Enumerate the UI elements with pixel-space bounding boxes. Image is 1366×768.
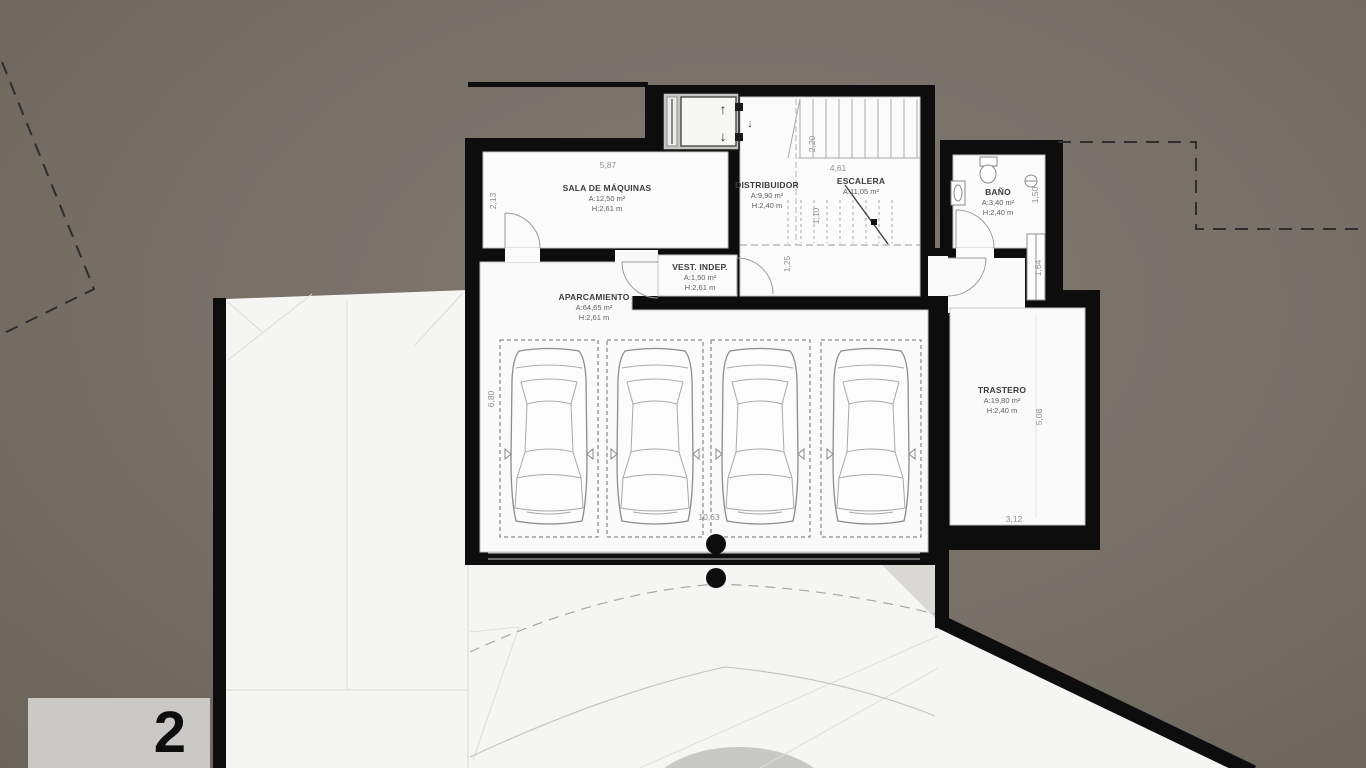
dim-trastero-width: 3,12 (1006, 514, 1023, 524)
vestibule-floor (658, 255, 737, 296)
corridor-floor (948, 258, 1025, 313)
elevator-up-arrow-icon: ↑ (720, 102, 727, 116)
column-dot (706, 568, 726, 588)
elevator-down-arrow-icon: ↓ (720, 129, 727, 143)
dim-distributor-clear: 1,25 (782, 256, 792, 273)
dim-garage-depth: 6,80 (486, 391, 496, 408)
upper-floor-edge-line (468, 82, 648, 87)
dim-bath-width: 1,50 (1030, 187, 1040, 204)
dim-sala-width: 5,87 (600, 160, 617, 170)
vestibule-door-zone (615, 250, 658, 296)
column-dot (706, 534, 726, 554)
stair-hall-floor (740, 97, 920, 296)
floor-plan-sheet: SALA DE MÁQUINAS A:12,50 m² H:2,61 m DIS… (0, 0, 1366, 768)
sheet-number-badge: 2 (28, 698, 210, 768)
dim-trastero-depth: 5,08 (1034, 409, 1044, 426)
car-icon (505, 349, 593, 525)
car-icon (716, 349, 804, 525)
entry-down-arrow-icon: ↓ (747, 117, 753, 131)
dim-corridor-window: 1,64 (1033, 260, 1043, 277)
dim-stair-flight-lower: 1,10 (811, 208, 821, 225)
car-icon (827, 349, 915, 525)
elevator-icon (663, 93, 743, 150)
dim-garage-width: 10,63 (698, 512, 719, 522)
retaining-wall-stub (935, 540, 949, 628)
storage-floor (950, 308, 1085, 525)
dim-stair-length: 4,61 (830, 163, 847, 173)
dim-stair-flight-upper: 2,20 (807, 136, 817, 153)
toilet-bowl-icon (980, 165, 996, 183)
retaining-wall-west (213, 298, 226, 768)
car-icon (611, 349, 699, 525)
dim-sala-depth: 2,13 (488, 193, 498, 210)
floor-plan-drawing (0, 0, 1366, 768)
